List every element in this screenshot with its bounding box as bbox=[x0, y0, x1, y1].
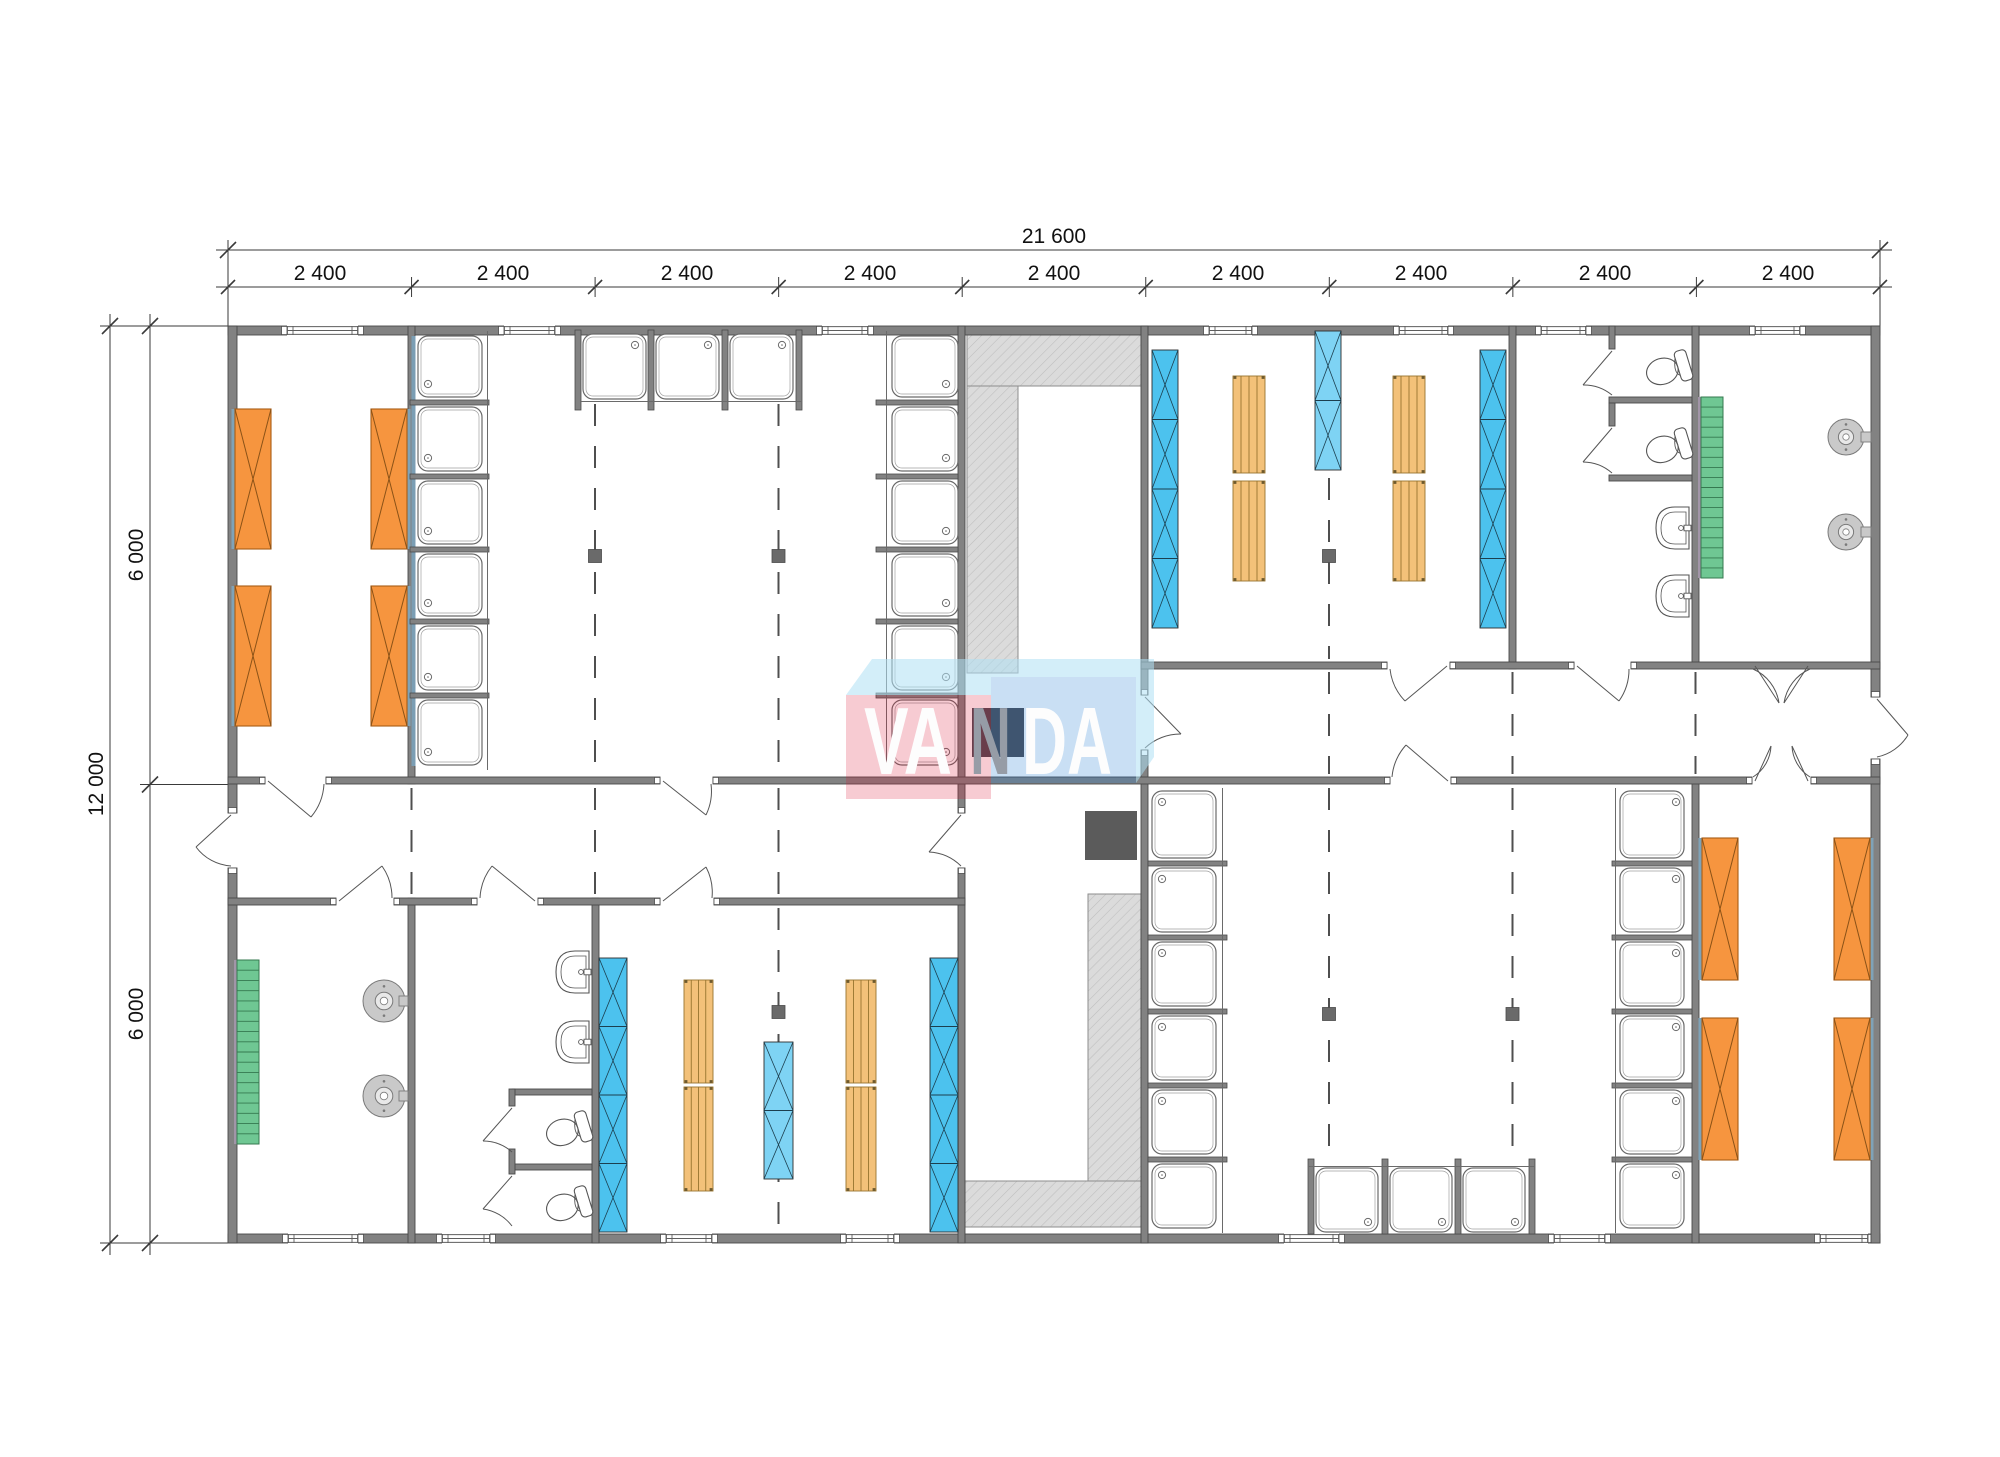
svg-text:2 400: 2 400 bbox=[661, 262, 714, 285]
svg-text:21 600: 21 600 bbox=[1022, 225, 1086, 248]
svg-text:DA: DA bbox=[1022, 688, 1112, 795]
svg-text:N: N bbox=[970, 688, 1011, 795]
svg-text:2 400: 2 400 bbox=[1212, 262, 1265, 285]
svg-text:2 400: 2 400 bbox=[844, 262, 897, 285]
svg-text:2 400: 2 400 bbox=[294, 262, 347, 285]
svg-text:VA: VA bbox=[864, 688, 952, 795]
svg-text:2 400: 2 400 bbox=[1579, 262, 1632, 285]
svg-text:2 400: 2 400 bbox=[1028, 262, 1081, 285]
svg-text:2 400: 2 400 bbox=[477, 262, 530, 285]
svg-text:2 400: 2 400 bbox=[1395, 262, 1448, 285]
svg-text:12 000: 12 000 bbox=[85, 752, 108, 816]
svg-text:6 000: 6 000 bbox=[125, 988, 148, 1041]
svg-text:6 000: 6 000 bbox=[125, 529, 148, 582]
svg-text:2 400: 2 400 bbox=[1762, 262, 1815, 285]
